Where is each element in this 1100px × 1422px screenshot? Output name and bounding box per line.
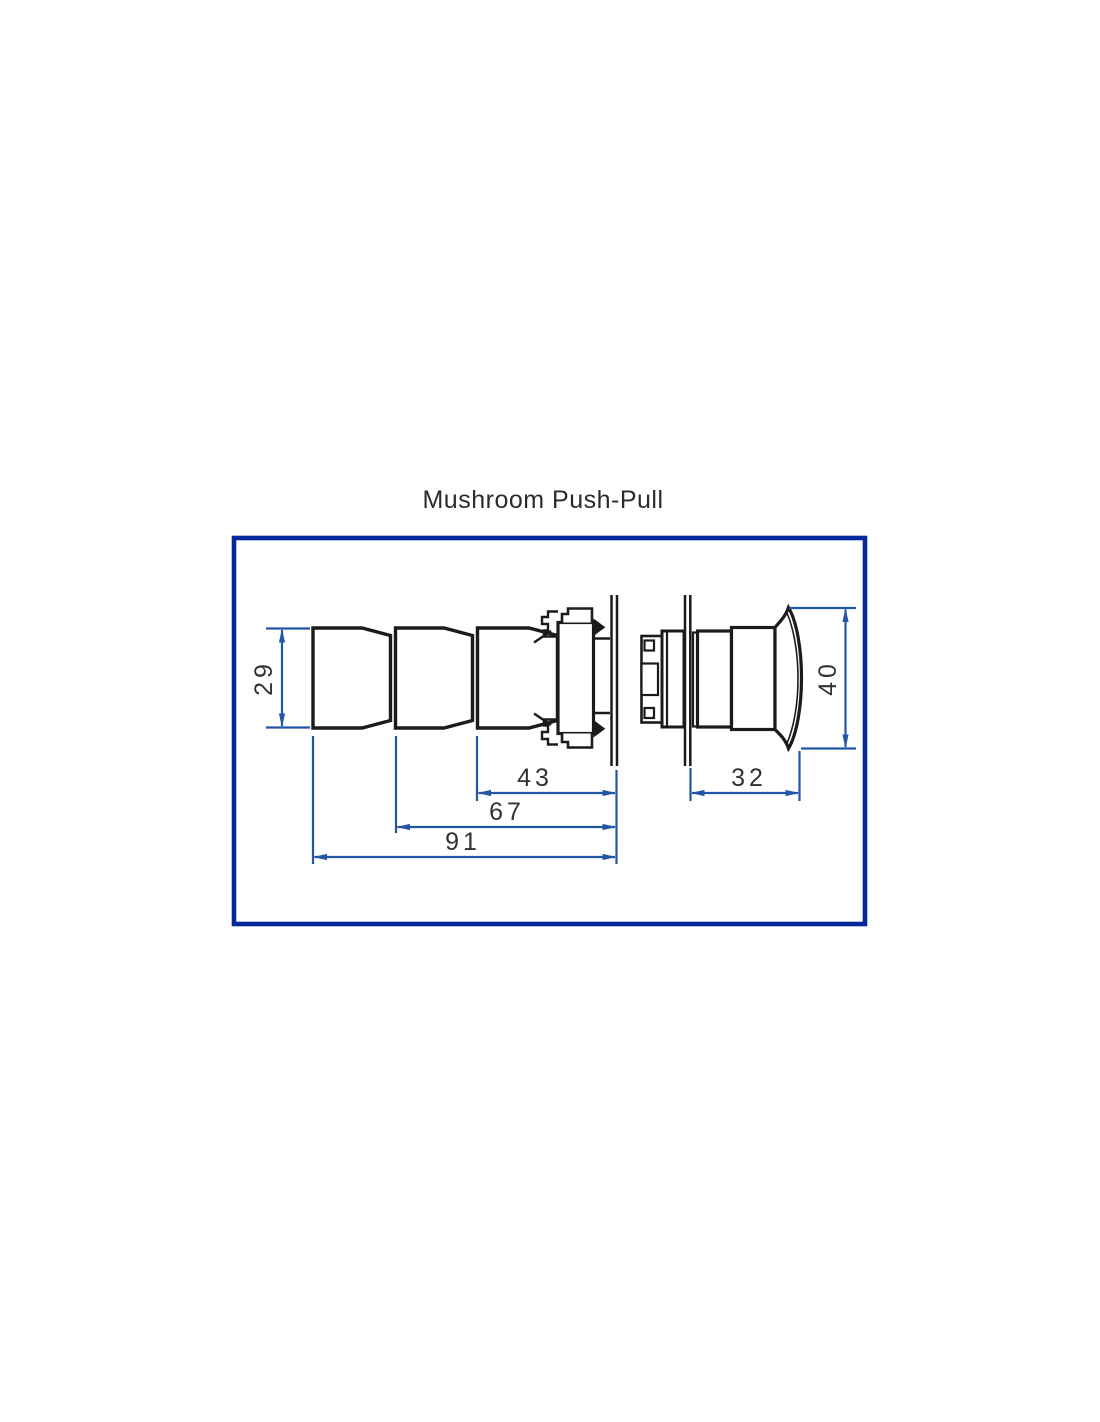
dimension-label-40: 40 — [814, 660, 842, 696]
arrowhead-right — [603, 790, 617, 796]
dimension-67: 67 — [396, 798, 617, 830]
technical-drawing: Mushroom Push-Pull — [0, 0, 1100, 1422]
mushroom-button — [693, 608, 802, 749]
arrowhead-right — [786, 790, 800, 796]
dimension-32: 32 — [691, 751, 800, 801]
rear-collar — [662, 631, 684, 727]
dimension-label-67: 67 — [489, 798, 525, 826]
dimension-label-29: 29 — [250, 660, 278, 696]
panel-left — [612, 595, 618, 766]
dimension-label-91: 91 — [445, 828, 481, 856]
button-body — [698, 631, 732, 727]
rear-latch-notch-top — [645, 641, 655, 651]
rear-latch-notch-bottom — [645, 708, 655, 718]
flange-top-tab — [562, 609, 592, 623]
dimension-43: 43 — [477, 764, 617, 796]
contact-block-2 — [396, 628, 473, 728]
rear-latch-notch-mid — [642, 664, 659, 696]
panel-right — [685, 595, 690, 766]
dimension-label-43: 43 — [517, 764, 553, 792]
latch-arrow-bottom — [594, 721, 605, 737]
arrowhead-left — [477, 790, 491, 796]
dimension-29: 29 — [250, 629, 310, 728]
head-assembly — [642, 631, 685, 727]
button-bezel — [732, 628, 776, 730]
operator-assembly — [313, 609, 610, 748]
arrowhead-left — [691, 790, 705, 796]
dimension-91: 91 — [313, 828, 617, 860]
latch-arrow-top — [594, 620, 605, 636]
arrowhead-down — [842, 735, 848, 749]
arrowhead-left — [313, 854, 327, 860]
arrowhead-right — [603, 854, 617, 860]
arrowhead-right — [603, 824, 617, 830]
contact-block-1 — [313, 628, 391, 728]
dimension-label-32: 32 — [731, 764, 767, 792]
arrowhead-up — [279, 629, 285, 643]
arrowhead-down — [279, 714, 285, 728]
arrowhead-left — [396, 824, 410, 830]
mounting-flange — [558, 623, 594, 734]
arrowhead-up — [842, 608, 848, 622]
contact-block-3 — [478, 628, 558, 728]
flange-bottom-tab — [562, 734, 592, 748]
page: Mushroom Push-Pull — [0, 0, 1100, 1422]
page-title: Mushroom Push-Pull — [422, 486, 663, 514]
